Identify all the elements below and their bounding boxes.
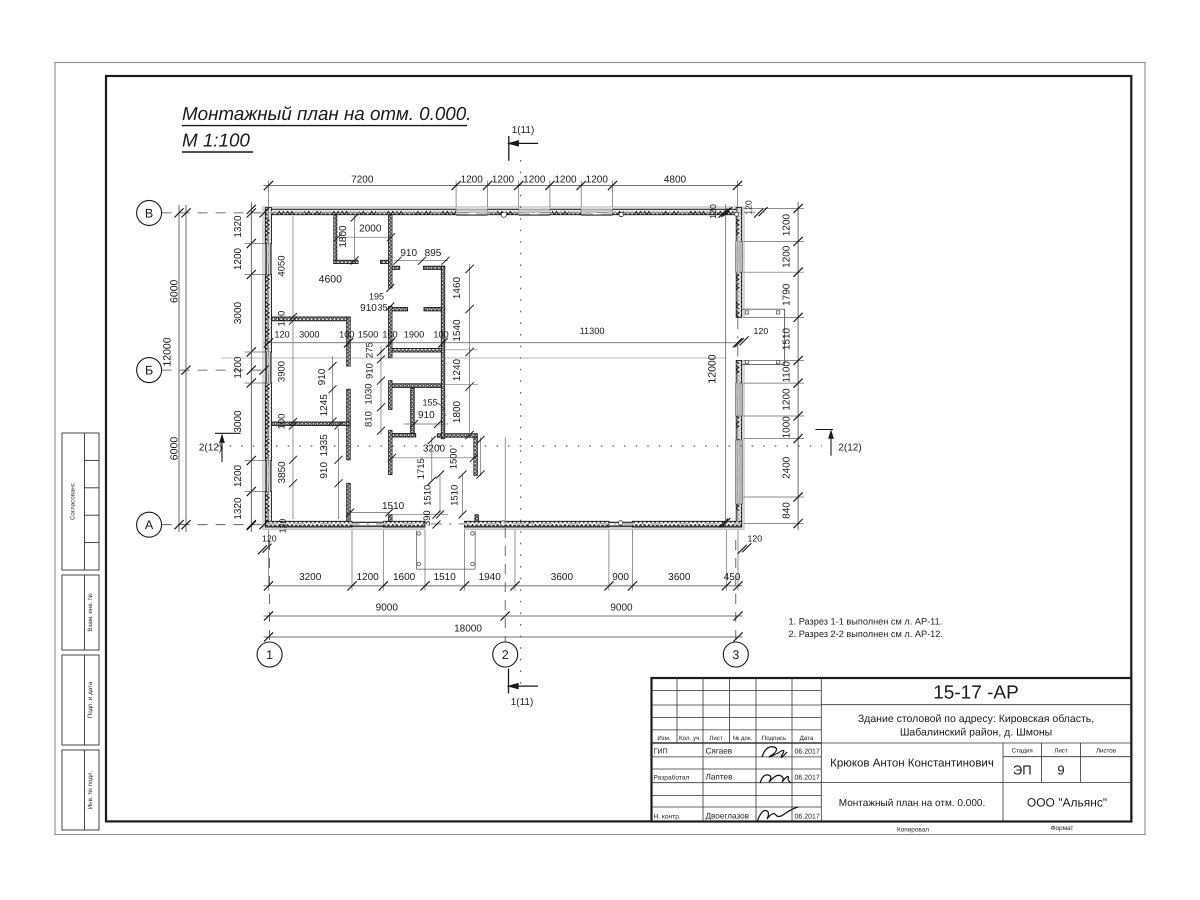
svg-text:1790: 1790 [782, 283, 793, 306]
svg-text:Крюков Антон Константинович: Крюков Антон Константинович [830, 758, 994, 770]
svg-text:1510: 1510 [449, 485, 460, 506]
svg-text:1800: 1800 [338, 225, 349, 248]
svg-text:2(12): 2(12) [199, 443, 222, 454]
svg-text:2000: 2000 [359, 224, 382, 235]
svg-text:1(11): 1(11) [512, 125, 535, 136]
svg-text:7200: 7200 [351, 175, 374, 186]
svg-text:120: 120 [747, 534, 762, 544]
svg-text:3600: 3600 [551, 572, 574, 583]
svg-text:895: 895 [425, 248, 442, 259]
svg-text:12000: 12000 [162, 337, 174, 366]
svg-text:11300: 11300 [580, 326, 605, 336]
svg-text:Листов: Листов [1096, 748, 1117, 755]
svg-text:1900: 1900 [404, 330, 424, 340]
svg-text:1: 1 [266, 648, 273, 662]
svg-text:1320: 1320 [233, 497, 244, 520]
svg-text:1245: 1245 [319, 394, 330, 417]
svg-text:Шабалинский район, д. Шмоны: Шабалинский район, д. Шмоны [900, 727, 1052, 739]
svg-text:1200: 1200 [492, 175, 515, 186]
svg-text:910: 910 [319, 462, 330, 479]
svg-text:1500: 1500 [358, 330, 378, 340]
svg-text:1200: 1200 [233, 247, 244, 270]
svg-text:2400: 2400 [782, 456, 793, 479]
svg-text:910: 910 [317, 368, 328, 385]
svg-text:35: 35 [377, 303, 387, 313]
svg-text:6000: 6000 [169, 437, 181, 461]
svg-text:1200: 1200 [554, 175, 577, 186]
svg-text:ООО "Альянс": ООО "Альянс" [1027, 796, 1107, 810]
svg-text:1510: 1510 [423, 485, 434, 506]
svg-text:120: 120 [708, 204, 718, 219]
svg-text:1200: 1200 [782, 388, 793, 411]
svg-text:840: 840 [782, 502, 793, 519]
svg-text:1200: 1200 [356, 572, 379, 583]
svg-text:910: 910 [418, 410, 435, 421]
svg-text:3200: 3200 [299, 572, 322, 583]
svg-text:ГИП: ГИП [654, 747, 668, 756]
svg-text:Здание столовой по адресу: Кир: Здание столовой по адресу: Кировская обл… [858, 713, 1094, 725]
svg-text:100: 100 [277, 311, 288, 327]
svg-text:15-17 -АР: 15-17 -АР [933, 683, 1019, 704]
svg-text:3900: 3900 [277, 361, 288, 382]
svg-text:1540: 1540 [452, 319, 463, 342]
svg-text:3000: 3000 [233, 301, 244, 324]
svg-text:910: 910 [400, 248, 417, 259]
svg-text:120: 120 [754, 326, 769, 336]
svg-text:3600: 3600 [668, 572, 691, 583]
svg-text:1200: 1200 [782, 213, 793, 236]
svg-text:1600: 1600 [393, 572, 416, 583]
svg-text:9000: 9000 [376, 603, 399, 614]
svg-text:1200: 1200 [586, 175, 609, 186]
svg-text:1510: 1510 [382, 501, 405, 512]
svg-text:120: 120 [262, 534, 277, 544]
svg-text:910: 910 [360, 303, 377, 314]
svg-text:Формат: Формат [1051, 825, 1074, 832]
svg-text:06.2017: 06.2017 [795, 814, 820, 821]
svg-text:1200: 1200 [233, 464, 244, 487]
svg-text:А: А [145, 518, 154, 532]
svg-text:1240: 1240 [452, 358, 463, 381]
svg-text:№ док.: № док. [733, 735, 753, 742]
svg-text:Б: Б [145, 364, 153, 378]
svg-text:3850: 3850 [277, 461, 288, 484]
svg-text:910: 910 [364, 363, 375, 379]
svg-text:Копировал: Копировал [897, 827, 929, 834]
svg-text:1510: 1510 [434, 572, 457, 583]
svg-text:100: 100 [277, 414, 288, 430]
svg-text:18000: 18000 [454, 624, 482, 635]
svg-text:1460: 1460 [452, 276, 463, 299]
svg-text:Сягаев: Сягаев [706, 747, 733, 756]
svg-text:06.2017: 06.2017 [795, 749, 820, 756]
svg-text:3: 3 [732, 648, 739, 662]
svg-text:Изм.: Изм. [657, 735, 671, 742]
svg-text:390: 390 [422, 510, 433, 526]
svg-text:1715: 1715 [416, 458, 427, 479]
svg-text:Дата: Дата [800, 735, 814, 742]
svg-text:2(12): 2(12) [838, 442, 861, 453]
svg-text:195: 195 [369, 292, 384, 302]
svg-text:Стадия: Стадия [1012, 748, 1033, 755]
svg-text:4800: 4800 [664, 175, 687, 186]
svg-text:Подп. и дата: Подп. и дата [87, 681, 94, 718]
svg-text:3000: 3000 [233, 410, 244, 433]
svg-text:Инв. № подл.: Инв. № подл. [87, 770, 94, 809]
svg-text:Взам. инв. №: Взам. инв. № [87, 593, 94, 632]
svg-text:100: 100 [382, 330, 397, 340]
svg-text:4050: 4050 [277, 255, 288, 276]
svg-text:900: 900 [612, 572, 629, 583]
svg-text:4600: 4600 [319, 273, 343, 285]
svg-text:275: 275 [364, 342, 375, 358]
svg-text:2. Разрез 2-2 выполнен см л. А: 2. Разрез 2-2 выполнен см л. АР-12. [789, 629, 943, 639]
svg-text:1030: 1030 [364, 383, 375, 404]
svg-text:100: 100 [339, 330, 354, 340]
svg-text:1200: 1200 [461, 175, 484, 186]
svg-text:М 1:100: М 1:100 [182, 130, 250, 151]
svg-text:810: 810 [364, 411, 375, 427]
svg-text:1200: 1200 [523, 175, 546, 186]
svg-text:1100: 1100 [782, 361, 793, 383]
svg-text:1200: 1200 [233, 356, 244, 379]
svg-text:06.2017: 06.2017 [795, 775, 820, 782]
svg-text:12000: 12000 [707, 354, 719, 383]
svg-text:2: 2 [502, 648, 509, 662]
svg-text:100: 100 [433, 330, 448, 340]
svg-text:ЭП: ЭП [1013, 763, 1032, 778]
svg-text:Кол. уч.: Кол. уч. [679, 735, 701, 742]
svg-text:Двоеглазов: Двоеглазов [706, 812, 750, 821]
svg-text:3000: 3000 [299, 330, 319, 340]
svg-text:1320: 1320 [233, 215, 244, 238]
svg-text:1000: 1000 [782, 416, 793, 439]
svg-text:1800: 1800 [452, 400, 463, 423]
svg-text:1(11): 1(11) [511, 697, 534, 708]
svg-text:1510: 1510 [782, 327, 793, 350]
svg-text:9: 9 [1057, 763, 1064, 778]
svg-text:1940: 1940 [479, 572, 502, 583]
svg-text:120: 120 [274, 330, 289, 340]
svg-text:Согласованс: Согласованс [70, 483, 77, 520]
svg-text:9000: 9000 [610, 603, 633, 614]
svg-text:Лаптев: Лаптев [706, 773, 733, 782]
svg-text:155: 155 [422, 397, 437, 407]
svg-text:Лист: Лист [1054, 748, 1068, 755]
svg-text:Лист: Лист [709, 735, 723, 742]
svg-text:Подпись: Подпись [762, 735, 787, 742]
svg-text:450: 450 [724, 572, 741, 583]
svg-text:Монтажный план на отм. 0.000.: Монтажный план на отм. 0.000. [182, 103, 471, 124]
svg-text:1335: 1335 [319, 434, 330, 457]
svg-text:3200: 3200 [423, 444, 446, 455]
svg-text:Разработал: Разработал [654, 775, 690, 782]
svg-text:120: 120 [278, 519, 288, 534]
svg-text:1500: 1500 [448, 448, 459, 469]
svg-text:В: В [145, 206, 153, 220]
svg-text:Н. контр.: Н. контр. [654, 814, 681, 821]
svg-text:1. Разрез 1-1 выполнен см л. А: 1. Разрез 1-1 выполнен см л. АР-11. [789, 617, 943, 627]
svg-text:Монтажный план на отм. 0.000.: Монтажный план на отм. 0.000. [839, 798, 985, 809]
svg-text:6000: 6000 [169, 279, 181, 303]
svg-text:1200: 1200 [782, 245, 793, 268]
